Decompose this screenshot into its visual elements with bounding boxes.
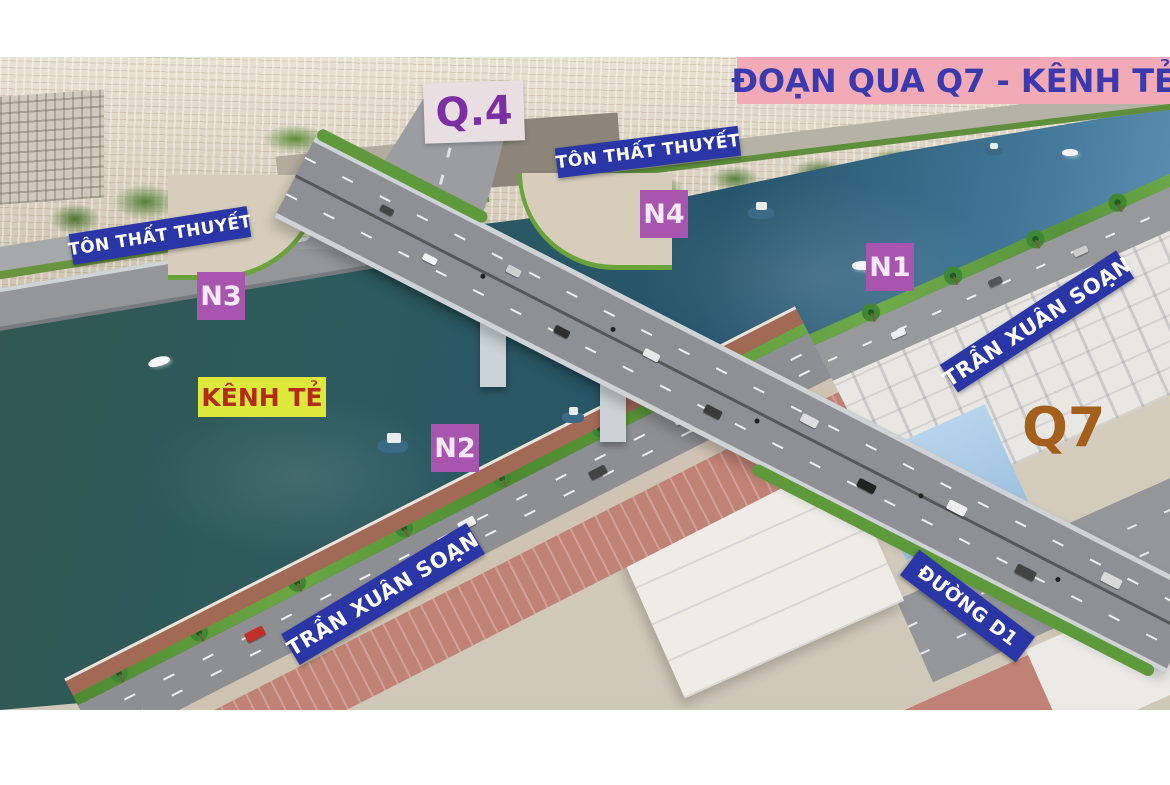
boat-icon (985, 147, 1003, 155)
vehicle (987, 276, 1003, 288)
node-marker-n1: N1 (866, 243, 914, 291)
vehicle (244, 625, 266, 643)
boat-icon (562, 412, 584, 423)
motorbike-icon (610, 326, 617, 333)
scene-title: ĐOẠN QUA Q7 - KÊNH TẺ (737, 57, 1170, 104)
rendering-image: ĐOẠN QUA Q7 - KÊNH TẺ Q.4 Q7 KÊNH TẺ TÔN… (0, 0, 1170, 785)
vehicle (588, 464, 608, 480)
label-district-q7: Q7 (1022, 401, 1105, 455)
node-marker-n3: N3 (197, 272, 245, 320)
vehicle (642, 348, 661, 363)
node-marker-n4: N4 (640, 190, 688, 238)
node-marker-n2: N2 (431, 424, 479, 472)
boat-icon (378, 439, 408, 453)
motorbike-icon (1055, 576, 1062, 583)
vehicle (703, 404, 723, 420)
vehicle (1014, 563, 1037, 581)
vehicle (379, 204, 395, 217)
vehicle (1072, 245, 1089, 257)
motorbike-icon (480, 273, 487, 280)
vehicle (890, 327, 907, 339)
label-district-q4: Q.4 (423, 80, 525, 143)
boat-icon (1062, 149, 1078, 156)
motorbike-icon (754, 418, 761, 425)
boat-icon (748, 207, 774, 219)
scene: ĐOẠN QUA Q7 - KÊNH TẺ Q.4 Q7 KÊNH TẺ TÔN… (0, 57, 1170, 710)
label-kenh-te: KÊNH TẺ (198, 377, 326, 417)
vehicle (799, 413, 819, 429)
vehicle (553, 325, 571, 339)
